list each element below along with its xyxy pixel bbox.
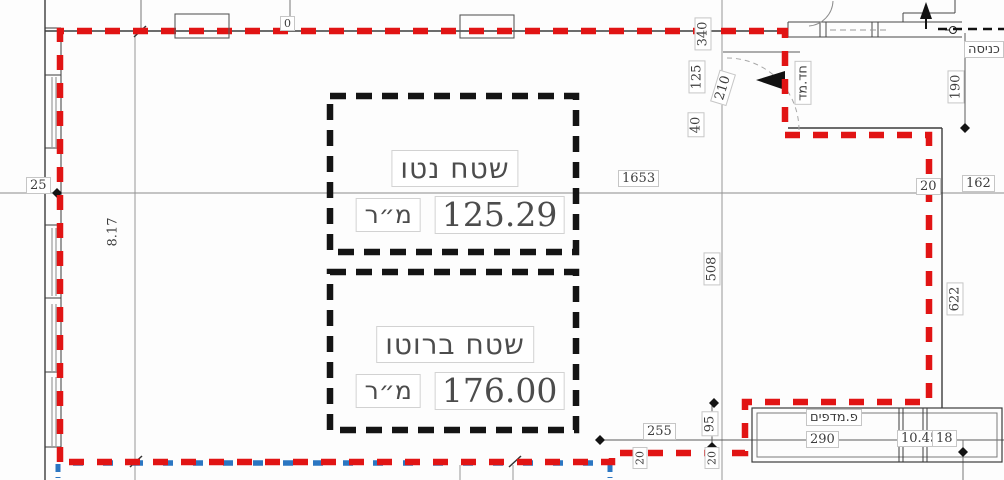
dim-left-offset: 25 [26,177,51,194]
dim-right-width: 162 [962,175,995,192]
glazing-lines [52,77,56,446]
dim-mid-height: 508 [704,253,721,286]
net-area-title: שטח נטו [391,150,518,187]
label-stairwell: חד.מד [795,61,812,105]
stair-block [788,0,962,37]
dim-shelf-step: 95 [702,412,719,437]
dim-left-height: 8.17 [106,215,121,250]
dim-shelf-width: 290 [806,431,839,448]
dim-top-mark: 0 [280,16,295,31]
gross-area-value: 176.00 [435,372,564,410]
dim-shelf-left: 255 [643,423,676,440]
net-area-unit: מ״ר [356,198,421,232]
label-entrance: כניסה [964,41,1004,58]
gross-area-title: שטח ברוטו [376,326,534,363]
dim-right-height-lower: 622 [947,283,964,316]
gross-area-unit: מ״ר [356,374,421,408]
dim-jog-a: 20 [633,447,648,469]
floor-plan-canvas: שטח נטו מ״ר 125.29 שטח ברוטו מ״ר 176.00 … [0,0,1004,480]
dim-notch-a: 340 [695,18,712,51]
top-columns [175,14,514,38]
dim-right-height-upper: 190 [948,71,965,104]
dim-right-gap: 20 [916,178,941,195]
dim-notch-c: 40 [688,113,705,138]
dim-top-width: 1653 [618,170,659,187]
door [723,52,800,130]
net-area-value: 125.29 [435,196,564,234]
gross-area-value-row: מ״ר 176.00 [356,372,565,410]
label-shelves: פ.מדפים [806,409,862,426]
net-area-value-row: מ״ר 125.29 [356,196,565,234]
door-leaf-triangle [756,71,785,90]
dim-jog-b: 20 [705,447,720,469]
dim-notch-b: 125 [689,61,706,94]
entrance-arrow [920,2,1004,29]
dim-shelf-right-b: 18 [932,430,957,447]
